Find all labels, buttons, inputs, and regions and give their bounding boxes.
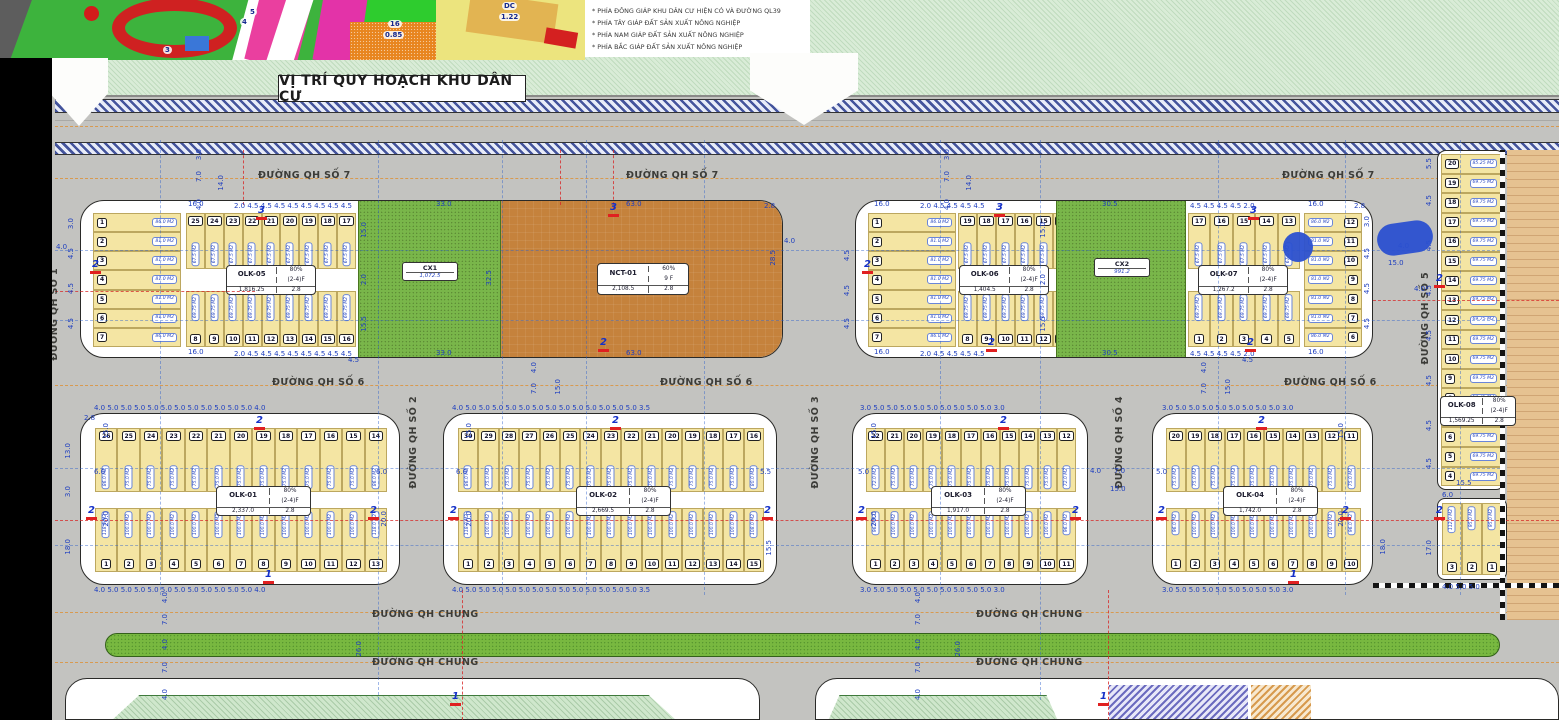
olk04-label: OLK-04 80% (2-4)F 1,742.0 2.8 [1223,486,1318,516]
lot-6: 100.0 M26 [961,508,980,572]
dimension-label: 4.0 [531,362,538,373]
lot-9: 100.0 M29 [1019,508,1038,572]
lot-19: 1975.0 M2 [682,428,702,492]
lot-9: 100.0 M29 [621,508,641,572]
dimension-label: 7.0 [915,614,922,625]
lot-area: 86.0 M2 [1308,218,1333,227]
callout-arrow [750,53,858,125]
lot-number: 13 [283,334,297,344]
section-marker: 3 [256,206,267,220]
lot-25: 2575.0 M2 [117,428,139,492]
lot-11: 69.75 M211 [243,291,262,347]
lot-area: 69.75 M2 [964,294,972,321]
lot-number: 20 [283,216,297,226]
lot-area: 96.0 M2 [1172,511,1180,535]
lot-area: 75.0 M2 [891,465,899,489]
lot-11: 69.75 M211 [1015,291,1034,347]
lot-number: 16 [1017,216,1031,226]
lot-number: 10 [1344,559,1358,569]
title-callout: VỊ TRÍ QUY HOẠCH KHU DÂN CƯ [278,75,526,102]
road-label: ĐƯỜNG QH SỐ 2 [408,396,419,489]
lot-area: 75.0 M2 [1172,465,1180,489]
lot-number: 24 [583,431,597,441]
section-marker: 2 [598,338,609,352]
dimension-label: 4.5 [1426,420,1433,431]
lot-area: 100.0 M2 [1192,511,1200,538]
dimension-label: 4.5 [1426,375,1433,386]
dimension-label: 15.0 [1040,222,1047,238]
lot-number: 2 [1217,334,1227,344]
lot-number: 5 [97,294,107,304]
lot-number: 6 [1348,332,1358,342]
green-area-cx1: CX1 1,072.5 [358,200,501,358]
lot-18: 1867.5 M2 [318,213,337,269]
lot-number: 17 [339,216,353,226]
lot-area: 100.0 M2 [1211,511,1219,538]
lot-number: 12 [1059,431,1073,441]
lot-number: 17 [1445,217,1459,227]
lot-number: 17 [998,216,1012,226]
dimension-label: 20.0 [466,511,473,527]
lot-number: 11 [324,559,338,569]
lot-area: 86.0 M2 [152,333,177,342]
lot-19: 1975.0 M2 [923,428,942,492]
dimension-label: 4.5 [1426,458,1433,469]
lot-number: 17 [1227,431,1241,441]
lot-area: 100.0 M2 [505,511,513,538]
lot-number: 16 [1214,216,1228,226]
land-nct01: NCT-01 60% 9 F 2,108.5 2.8 [501,200,783,358]
lot-8: 100.0 M28 [1303,508,1323,572]
lot-area: 100.0 M2 [526,511,534,538]
lot-2: 95.0 M22 [1462,503,1482,575]
lot-7: 100.0 M27 [1283,508,1303,572]
lot-area: 67.5 M2 [305,242,313,266]
lot-number: 14 [1286,431,1300,441]
olk01-bottom-lots: 118.0 M21100.0 M22100.0 M23100.0 M24100.… [95,508,387,572]
road-centerline [55,662,1559,663]
dimension-label: 7.0 [162,614,169,625]
block-floors: (2-4)F [276,277,315,283]
lot-area: 100.0 M2 [327,511,335,538]
lot-area: 75.0 M2 [147,465,155,489]
lot-13: 1375.0 M2 [1038,428,1057,492]
lot-area: 75.0 M2 [709,465,717,489]
lot-number: 2 [872,237,882,247]
dimension-label: 7.0 [915,662,922,673]
lot-19: 1969.75 M2 [1441,174,1501,194]
lot-area: 75.0 M2 [1328,465,1336,489]
lot-25: 2567.5 M2 [186,213,205,269]
map-edge [0,58,52,720]
lot-area: 100.0 M2 [170,511,178,538]
lot-area: 80.0 M2 [750,465,758,489]
lot-area: 75.0 M2 [1192,465,1200,489]
lot-area: 75.0 M2 [170,465,178,489]
lot-5: 581.0 M2 [868,290,956,309]
section-marker: 1 [1288,570,1299,584]
lot-12: 1269.75 M2 [1441,310,1501,330]
lot-number: 9 [1445,374,1455,384]
lot-area: 100.0 M2 [566,511,574,538]
lot-number: 3 [909,559,919,569]
dimension-label: 3.0 [1364,216,1371,227]
lot-area: 81.0 M2 [152,256,177,265]
lot-number: 8 [606,559,616,569]
lot-4: 69.75 M24 [1255,291,1277,347]
lot-number: 11 [1344,431,1358,441]
lot-area: 75.0 M2 [730,465,738,489]
lot-number: 1 [1194,334,1204,344]
dimension-label: 15.5 [1040,316,1047,332]
lot-area: 85.25 M2 [1470,159,1498,168]
lot-number: 6 [1268,559,1278,569]
block-area: 1,816.25 [227,286,276,293]
olk08-group-lots: 112.0 M2395.0 M2295.0 M21 [1442,503,1502,575]
lot-number: 13 [1040,431,1054,441]
olk02-bottom-lots: 118.0 M21100.0 M22100.0 M23100.0 M24100.… [458,508,764,572]
lot-number: 10 [1040,559,1054,569]
lot-area: 86.0 M2 [927,218,952,227]
lot-11: 100.0 M211 [320,508,342,572]
lot-area: 100.0 M2 [350,511,358,538]
lot-number: 1 [872,218,882,228]
lot-number: 9 [1327,559,1337,569]
lot-28: 2875.0 M2 [499,428,519,492]
olk07-bottom-lots: 69.75 M2169.75 M2269.75 M2369.75 M2469.7… [1188,291,1300,347]
dimension-label: 3.0 [196,149,203,160]
dimension-label: 4.5 [1426,330,1433,341]
lot-area: 67.5 M2 [211,242,219,266]
dimension-label: 3.0 5.0 5.0 5.0 5.0 5.0 5.0 5.0 5.0 3.0 [1162,405,1293,412]
lot-19: 1975.0 M2 [252,428,274,492]
olk02-label: OLK-02 80% (2-4)F 2,669.5 2.8 [576,486,671,516]
block-olk06-cx2-olk07: 186.0 M2281.0 M2381.0 M2481.0 M2581.0 M2… [855,200,1373,358]
lot-area: 81.0 M2 [927,275,952,284]
lot-area: 67.5 M2 [983,242,991,266]
lot-14: 1475.0 M2 [1019,428,1038,492]
section-marker: 3 [994,203,1005,217]
block-olk08: 2085.25 M21969.75 M21869.75 M21769.75 M2… [1437,150,1505,490]
lot-1: 95.0 M21 [1482,503,1502,575]
lot-number: 15 [1445,256,1459,266]
lot-number: 1 [1171,559,1181,569]
lot-24: 2467.5 M2 [205,213,224,269]
olk05-label: OLK-05 80% (2-4)F 1,816.25 2.8 [226,265,316,295]
lot-area: 69.75 M2 [1470,452,1498,461]
lot-area: 81.0 M2 [927,295,952,304]
lot-area: 69.75 M2 [1470,374,1498,383]
minimap-feature [185,36,209,51]
lot-area: 75.0 M2 [1025,465,1033,489]
lot-area: 112.0 M2 [1448,506,1456,533]
lot-number: 18 [706,431,720,441]
lot-19: 1967.5 M2 [958,213,977,269]
lot-number: 4 [524,559,534,569]
lot-21: 2167.5 M2 [262,213,281,269]
road-centerline [55,126,1559,127]
lot-number: 2 [97,237,107,247]
dimension-label: 4.0 [784,238,795,245]
road-label: ĐƯỜNG QH SỐ 7 [626,170,719,181]
lot-number: 12 [346,559,360,569]
lot-number: 14 [1445,276,1459,286]
lot-12: 100.0 M212 [342,508,364,572]
lot-number: 16 [747,431,761,441]
block-code: OLK-05 [227,271,276,279]
lot-25: 2575.0 M2 [560,428,580,492]
lot-number: 15 [346,431,360,441]
section-marker: 2 [998,416,1009,430]
lot-20: 2067.5 M2 [280,213,299,269]
lot-area: 67.5 M2 [229,242,237,266]
lot-area: 75.0 M2 [669,465,677,489]
lot-number: 12 [1344,218,1358,228]
lot-2: 100.0 M22 [885,508,904,572]
lot-area: 67.5 M2 [1021,242,1029,266]
lot-24: 2475.0 M2 [580,428,600,492]
lot-number: 20 [1169,431,1183,441]
dimension-label: 2.8 [1354,203,1365,210]
lot-20: 2075.0 M2 [662,428,682,492]
dimension-label: 15.0 [871,423,878,439]
site-plan: 5160.85DC1.2234 * PHÍA ĐÔNG GIÁP KHU DÂN… [0,0,1559,720]
lot-area: 81.0 M2 [1308,295,1333,304]
dimension-label: 13.0 [65,443,72,459]
lot-number: 3 [1447,562,1457,572]
lot-area: 75.0 M2 [125,465,133,489]
section-marker: 2 [1256,416,1267,430]
lot-6: 681.0 M2 [868,309,956,328]
lot-area: 75.0 M2 [485,465,493,489]
lot-9: 69.75 M29 [205,291,224,347]
lot-area: 72.0 M2 [1063,465,1071,489]
lot-1: 186.0 M2 [93,213,181,232]
dimension-label: 4.5 4.5 4.5 4.5 2.0 [1190,203,1255,210]
lot-number: 5 [872,294,882,304]
lot-number: 16 [983,431,997,441]
lot-17: 1775.0 M2 [961,428,980,492]
lot-number: 7 [97,332,107,342]
lot-number: 6 [872,313,882,323]
lot-area: 81.0 M2 [152,295,177,304]
olk01-label: OLK-01 80% (2-4)F 2,337.0 2.8 [216,486,311,516]
dimension-label: 5.5 [1426,158,1433,169]
hatched-zone-orange [1251,685,1311,720]
lot-number: 5 [191,559,201,569]
lot-12: 1272.0 M2 [1057,428,1076,492]
dimension-label: 3.0 5.0 5.0 5.0 5.0 5.0 5.0 5.0 5.0 5.0 … [860,405,1005,412]
lot-number: 13 [1305,431,1319,441]
lot-number: 12 [685,559,699,569]
lot-number: 20 [907,431,921,441]
lot-area: 72.0 M2 [872,465,880,489]
lot-13: 69.75 M213 [280,291,299,347]
lot-8: 100.0 M28 [601,508,621,572]
lot-7: 786.0 M2 [868,328,956,347]
lot-13: 1375.0 M2 [1303,428,1323,492]
dimension-label: 14.0 [966,175,973,191]
dimension-label: 15.0 [1338,423,1345,439]
lot-15: 1569.75 M2 [1441,252,1501,272]
lot-area: 69.75 M2 [1470,335,1498,344]
dimension-label: 4.0 [162,689,169,700]
dimension-label: 15.0 [555,379,562,395]
notes-panel: * PHÍA ĐÔNG GIÁP KHU DÂN CƯ HIỆN CÓ VÀ Đ… [585,0,810,57]
lot-16: 1675.0 M2 [320,428,342,492]
road-label: ĐƯỜNG QH CHUNG [372,609,479,620]
lot-number: 15 [747,559,761,569]
lot-area: 100.0 M2 [910,511,918,538]
green-strip [828,695,1058,720]
dimension-label: 3.0 [944,149,951,160]
lot-22: 2267.5 M2 [243,213,262,269]
lot-8: 81.0 M28 [1304,290,1362,309]
lot-22: 2275.0 M2 [185,428,207,492]
lot-number: 8 [1307,559,1317,569]
lot-number: 23 [226,216,240,226]
section-marker: 1 [1098,692,1109,706]
lot-number: 21 [887,431,901,441]
section-marker: 2 [1156,506,1167,520]
lot-16: 1680.0 M2 [744,428,764,492]
dimension-label: 30.5 [1102,350,1118,357]
lot-21: 2175.0 M2 [642,428,662,492]
section-marker: 2 [856,506,867,520]
dimension-label: 4.5 [68,283,75,294]
lot-number: 4 [97,275,107,285]
lot-20: 2075.0 M2 [230,428,252,492]
lot-19: 1975.0 M2 [1186,428,1206,492]
dimension-label: 4.0 5.0 5.0 [1442,584,1480,591]
road-label: ĐƯỜNG QH SỐ 7 [258,170,351,181]
lot-4: 100.0 M24 [162,508,184,572]
lot-3: 112.0 M23 [1442,503,1462,575]
lot-number: 4 [169,559,179,569]
lot-18: 1875.0 M2 [942,428,961,492]
lot-6: 681.0 M2 [93,309,181,328]
lot-number: 11 [245,334,259,344]
lot-number: 11 [1059,559,1073,569]
block-olk08-group: 112.0 M2395.0 M2295.0 M21 [1437,498,1507,580]
lot-23: 2367.5 M2 [224,213,243,269]
lot-number: 3 [1210,559,1220,569]
lot-12: 100.0 M212 [682,508,702,572]
lot-number: 4 [1229,559,1239,569]
lot-number: 7 [1348,313,1358,323]
lot-area: 81.0 M2 [1308,314,1333,323]
section-marker: 1 [263,570,274,584]
dimension-label: 4.5 [68,318,75,329]
project-boundary [1500,150,1505,620]
block-height: 2.8 [276,286,315,293]
section-marker: 3 [1248,206,1259,220]
lot-area: 67.5 M2 [1263,242,1271,266]
section-marker: 2 [254,416,265,430]
lot-number: 1 [1487,562,1497,572]
lot-11: 1169.75 M2 [1441,330,1501,350]
dimension-label: 7.0 [196,171,203,182]
boundary-hatch [55,142,1559,155]
lot-number: 23 [604,431,618,441]
section-marker: 2 [448,506,459,520]
minimap-label: 3 [163,46,172,54]
lot-number: 6 [213,559,223,569]
lot-17: 1769.75 M2 [1441,213,1501,233]
olk04-top-lots: 2075.0 M21975.0 M21875.0 M21775.0 M21675… [1166,428,1361,492]
olk04-bottom-lots: 96.0 M21100.0 M22100.0 M23100.0 M24100.0… [1166,508,1361,572]
dimension-label: 4.0 [56,244,67,251]
lot-7: 100.0 M27 [580,508,600,572]
lot-area: 69.75 M2 [1470,316,1498,325]
lot-number: 5 [1445,452,1455,462]
lot-number: 16 [1247,431,1261,441]
dimension-label: 7.0 [944,171,951,182]
dimension-label: 4.5 [844,285,851,296]
dimension-label: 2.0 4.5 4.5 4.5 4.5 4.5 4.5 4.5 4.5 [234,203,352,210]
dimension-label: 4.0 5.0 5.0 5.0 5.0 5.0 5.0 5.0 5.0 5.0 … [452,587,650,594]
minimap-feature [84,6,99,21]
lot-area: 69.75 M2 [1470,257,1498,266]
dimension-label: 4.5 [1364,248,1371,259]
dimension-label: 15.0 [361,222,368,238]
lot-12: 69.75 M212 [262,291,281,347]
lot-number: 15 [1266,431,1280,441]
lot-number: 23 [166,431,180,441]
lot-22: 2275.0 M2 [621,428,641,492]
section-marker: 2 [86,506,97,520]
lot-number: 11 [1017,334,1031,344]
road-label: ĐƯỜNG QH SỐ 7 [1282,170,1375,181]
lot-area: 67.5 M2 [248,242,256,266]
lot-area: 69.75 M2 [1263,294,1271,321]
lot-9: 81.0 M29 [1304,270,1362,289]
lot-number: 18 [1208,431,1222,441]
lot-number: 25 [563,431,577,441]
lot-number: 17 [964,431,978,441]
section-marker: 2 [1340,506,1351,520]
lot-number: 2 [124,559,134,569]
lot-number: 15 [321,334,335,344]
lot-number: 18 [279,431,293,441]
lot-area: 67.5 M2 [1040,242,1048,266]
section-marker: 2 [986,338,997,352]
dimension-label: 4.5 [1426,285,1433,296]
lot-area: 81.0 M2 [927,237,952,246]
lot-3: 381.0 M2 [93,251,181,270]
lot-4: 100.0 M24 [923,508,942,572]
lot-20: 2085.25 M2 [1441,154,1501,174]
lot-area: 75.0 M2 [566,465,574,489]
lot-number: 8 [1348,294,1358,304]
lot-number: 13 [706,559,720,569]
lot-area: 69.75 M2 [192,294,200,321]
lot-4: 481.0 M2 [868,270,956,289]
lot-17: 1767.5 M2 [996,213,1015,269]
lot-number: 4 [872,275,882,285]
section-marker: 2 [368,506,379,520]
lot-23: 2375.0 M2 [162,428,184,492]
road-label: ĐƯỜNG QH CHUNG [976,609,1083,620]
dimension-label: 4.0 [1201,362,1208,373]
lot-area: 81.0 M2 [927,314,952,323]
lot-area: 69.75 M2 [211,294,219,321]
lot-5: 569.75 M2 [1441,447,1501,467]
lot-area: 67.5 M2 [1195,242,1203,266]
lot-14: 69.75 M214 [299,291,318,347]
lot-21: 2175.0 M2 [207,428,229,492]
lot-area: 69.75 M2 [1240,294,1248,321]
